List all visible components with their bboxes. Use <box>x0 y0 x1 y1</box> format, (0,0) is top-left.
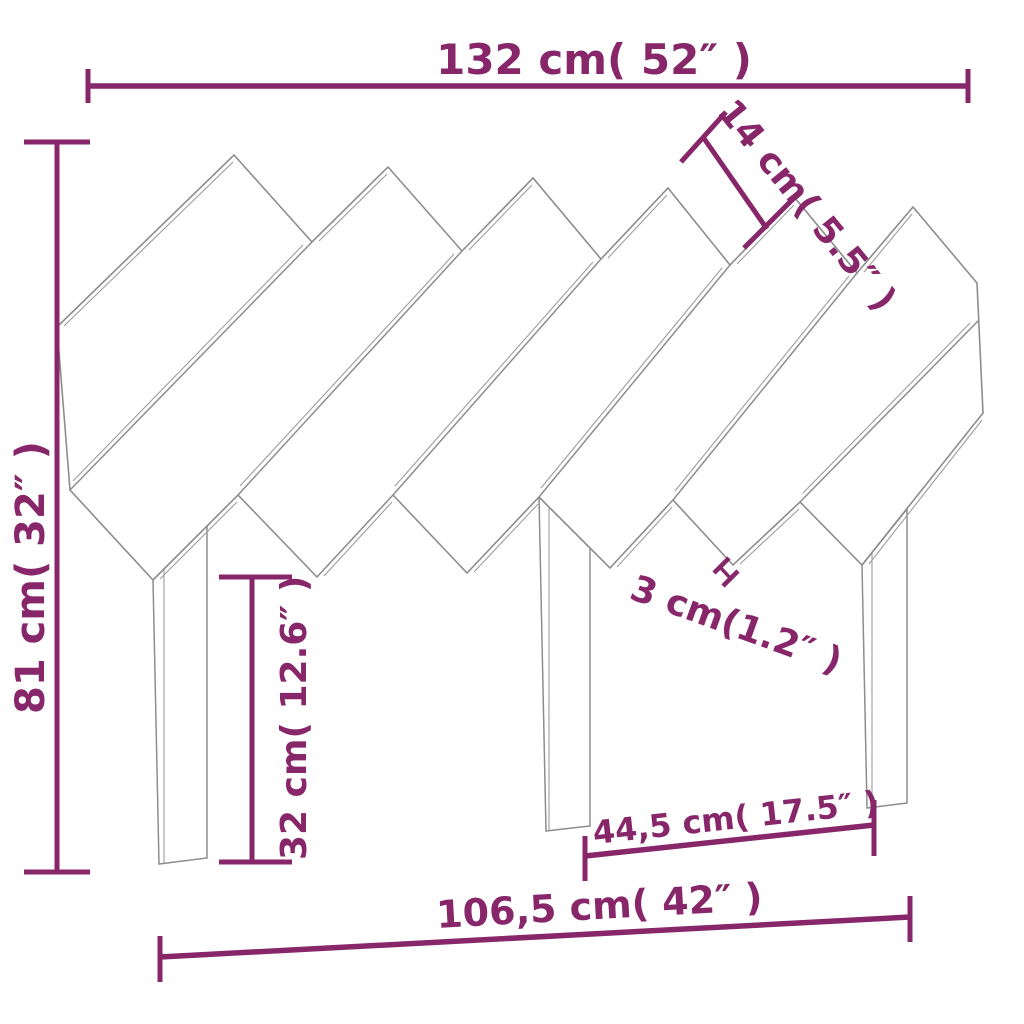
dim-leg-height: 32 cm( 12.6″ ) <box>219 576 315 862</box>
dim-line <box>720 567 732 580</box>
dim-overall-width-label: 132 cm( 52″ ) <box>436 35 752 84</box>
dim-slat-thickness: 3 cm(1.2″ ) <box>625 558 847 682</box>
leg-middle-face <box>539 497 590 831</box>
headboard-dimension-diagram: 132 cm( 52″ ) 14 cm( 5.5″ ) 81 cm( 32″ )… <box>0 0 1024 1024</box>
dim-slat-thickness-label: 3 cm(1.2″ ) <box>625 568 847 682</box>
leg-left-face <box>153 526 207 864</box>
dim-overall-width: 132 cm( 52″ ) <box>88 35 968 103</box>
dim-overall-height: 81 cm( 32″ ) <box>8 142 90 872</box>
diagram-canvas: 132 cm( 52″ ) 14 cm( 5.5″ ) 81 cm( 32″ )… <box>0 0 1024 1024</box>
leg-left <box>153 526 207 864</box>
dim-leg-height-label: 32 cm( 12.6″ ) <box>274 576 315 860</box>
leg-middle <box>539 497 590 831</box>
dim-inner-leg-span: 44,5 cm( 17.5″ ) <box>585 783 880 881</box>
dim-overall-height-label: 81 cm( 32″ ) <box>8 441 54 714</box>
dim-base-width: 106,5 cm( 42″ ) <box>160 875 910 982</box>
